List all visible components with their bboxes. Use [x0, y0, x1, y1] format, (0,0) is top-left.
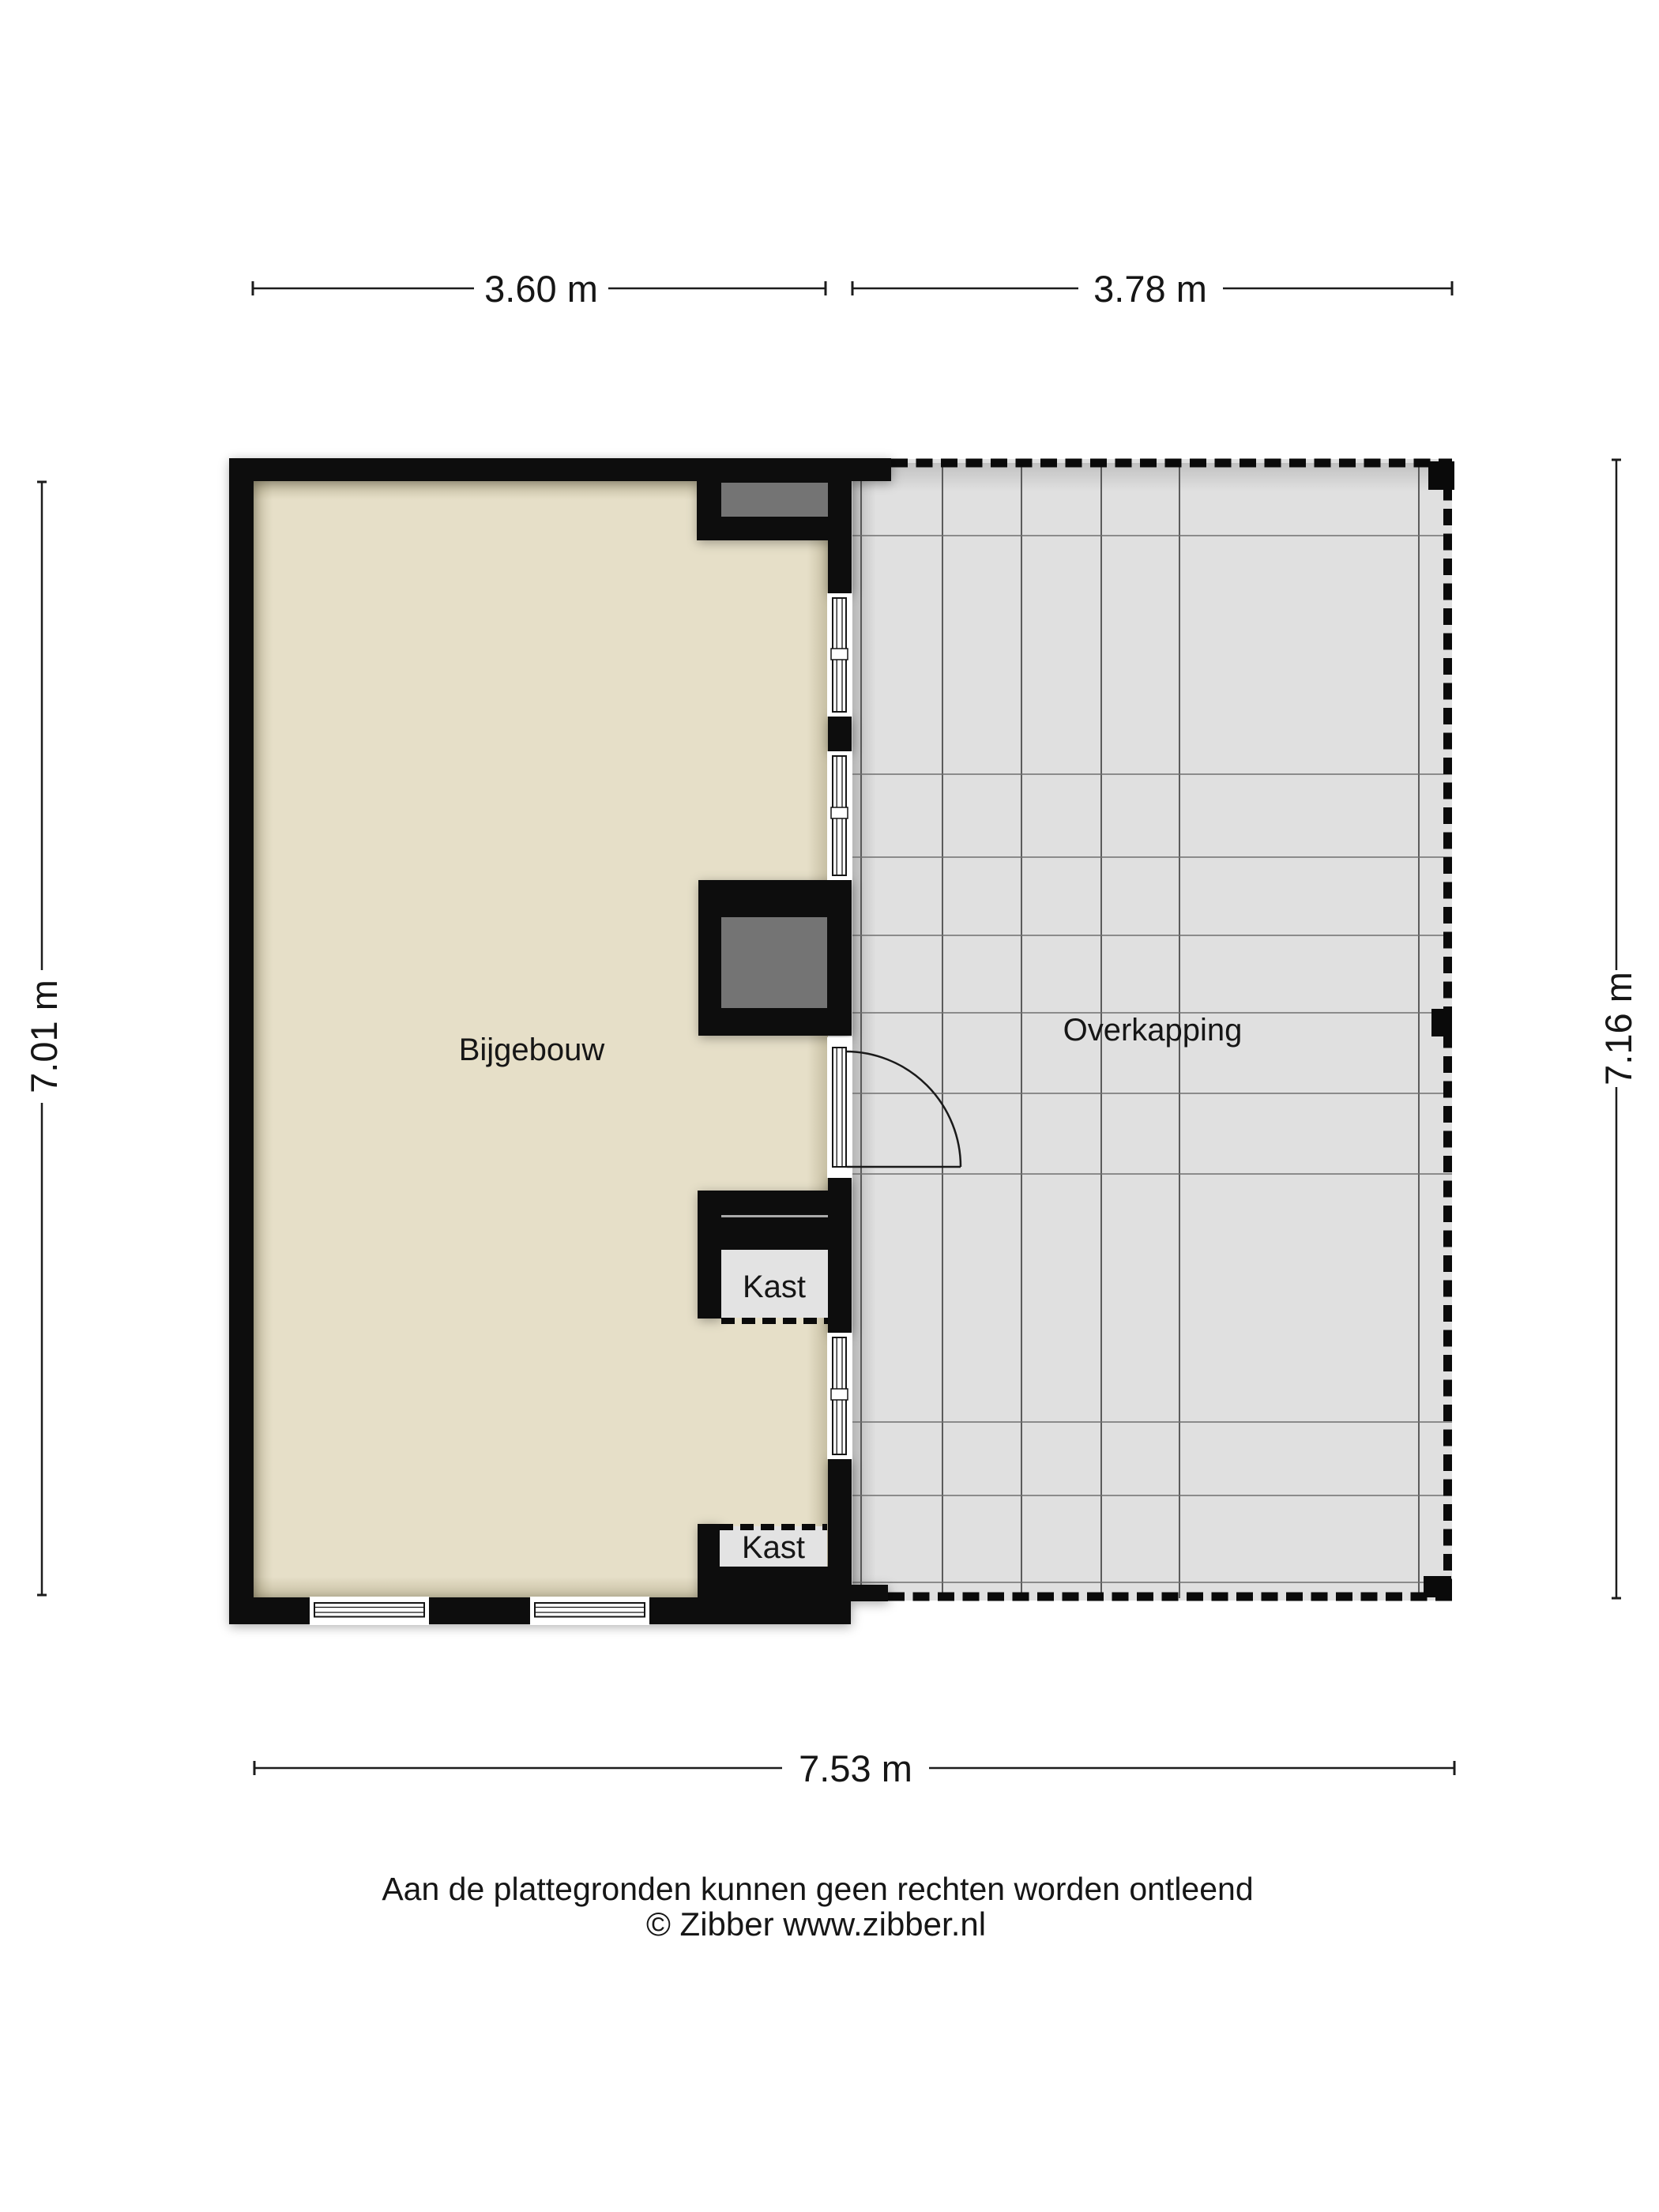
svg-text:© Zibber www.zibber.nl: © Zibber www.zibber.nl	[646, 1905, 986, 1943]
svg-text:Kast: Kast	[742, 1530, 805, 1565]
svg-text:7.53 m: 7.53 m	[799, 1747, 912, 1789]
svg-text:Bijgebouw: Bijgebouw	[459, 1033, 605, 1067]
svg-text:7.01 m: 7.01 m	[23, 980, 65, 1093]
svg-text:3.78 m: 3.78 m	[1093, 268, 1207, 310]
svg-text:Kast: Kast	[743, 1270, 806, 1304]
svg-text:3.60 m: 3.60 m	[484, 268, 598, 310]
svg-text:Aan de plattegronden kunnen ge: Aan de plattegronden kunnen geen rechten…	[382, 1871, 1253, 1907]
svg-text:Overkapping: Overkapping	[1063, 1013, 1243, 1048]
svg-text:7.16 m: 7.16 m	[1597, 972, 1639, 1085]
